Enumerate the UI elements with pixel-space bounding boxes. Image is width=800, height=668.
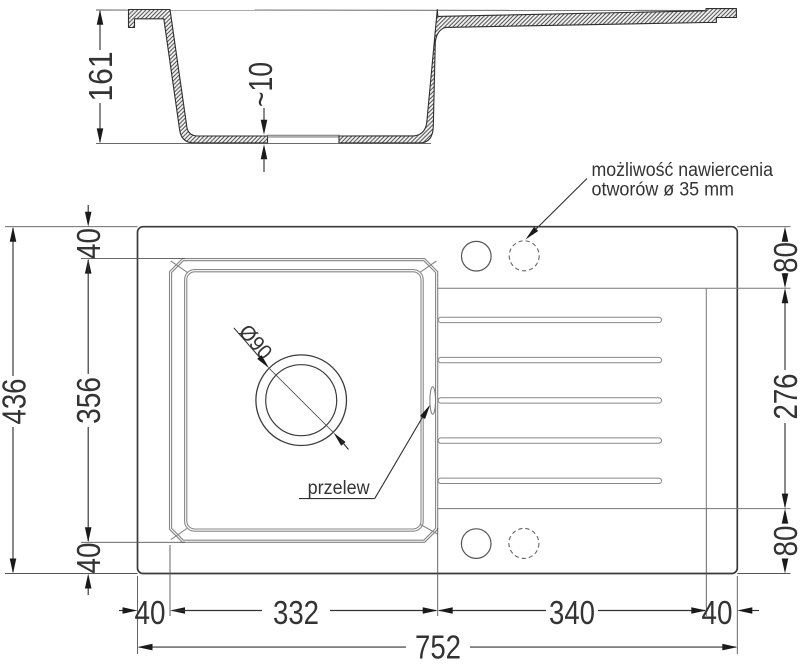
- svg-text:40: 40: [70, 543, 107, 574]
- svg-text:40: 40: [70, 228, 107, 259]
- svg-text:332: 332: [273, 594, 319, 631]
- svg-text:276: 276: [767, 374, 800, 420]
- svg-text:340: 340: [549, 594, 595, 631]
- svg-text:752: 752: [415, 629, 461, 666]
- svg-text:~10: ~10: [242, 62, 279, 107]
- svg-text:możliwość nawiercenia: możliwość nawiercenia: [592, 160, 774, 181]
- svg-text:przelew: przelew: [308, 478, 370, 499]
- svg-text:40: 40: [135, 594, 166, 631]
- svg-text:161: 161: [82, 52, 119, 102]
- svg-text:436: 436: [0, 379, 33, 425]
- svg-text:356: 356: [70, 377, 107, 424]
- svg-text:otworów ø 35 mm: otworów ø 35 mm: [592, 180, 735, 201]
- svg-text:80: 80: [767, 242, 800, 273]
- svg-text:Ø90: Ø90: [234, 320, 276, 364]
- svg-text:80: 80: [767, 526, 800, 557]
- svg-text:40: 40: [702, 594, 733, 631]
